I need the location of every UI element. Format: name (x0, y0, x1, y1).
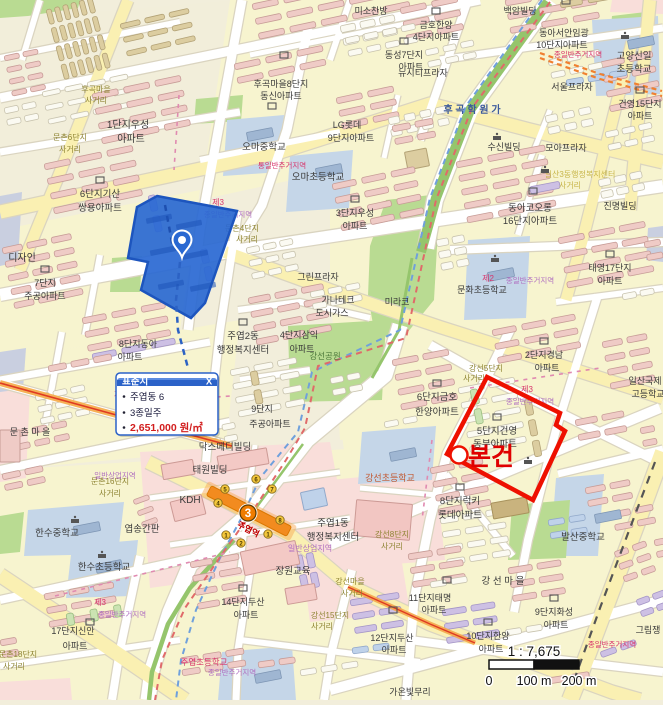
svg-text:9단지화성: 9단지화성 (535, 607, 573, 617)
svg-text:9단지아파트: 9단지아파트 (328, 133, 374, 143)
svg-text:일산3동행정복지센터: 일산3동행정복지센터 (545, 169, 616, 179)
svg-text:일반상업지역: 일반상업지역 (288, 543, 332, 553)
svg-text:롯데아파트: 롯데아파트 (438, 510, 482, 521)
svg-text:제3: 제3 (94, 598, 106, 607)
svg-text:건영15단지: 건영15단지 (618, 99, 661, 109)
svg-text:한양아파트: 한양아파트 (415, 407, 459, 418)
svg-text:태영17단지: 태영17단지 (588, 263, 631, 273)
svg-text:아파트: 아파트 (382, 645, 407, 655)
svg-text:수신빌딩: 수신빌딩 (487, 142, 520, 152)
svg-text:후곡마을: 후곡마을 (81, 85, 110, 94)
svg-text:가나테크: 가나테크 (321, 295, 354, 305)
svg-text:10단지한양: 10단지한양 (466, 631, 509, 641)
svg-text:주엽동 6: 주엽동 6 (130, 392, 164, 403)
svg-text:강선마을: 강선마을 (335, 576, 364, 586)
svg-text:제2: 제2 (482, 274, 494, 283)
svg-text:미라코: 미라코 (385, 297, 410, 307)
svg-text:주엽2동: 주엽2동 (227, 331, 259, 342)
svg-text:사거리: 사거리 (341, 589, 363, 598)
svg-text:일반상업지역: 일반상업지역 (94, 470, 135, 480)
svg-text:동아코오롱: 동아코오롱 (508, 203, 552, 214)
svg-text:장원교육: 장원교육 (276, 566, 311, 577)
svg-text:아파트: 아파트 (63, 641, 88, 651)
svg-text:아파트: 아파트 (422, 605, 447, 615)
svg-text:행정복지센터: 행정복지센터 (307, 531, 359, 543)
svg-text:오마초등학교: 오마초등학교 (292, 172, 345, 183)
svg-text:주엽1동: 주엽1동 (317, 518, 349, 529)
svg-text:사거리: 사거리 (59, 145, 81, 154)
svg-text:문화초등학교: 문화초등학교 (457, 285, 507, 295)
svg-text:강선5단지: 강선5단지 (469, 363, 503, 373)
svg-text:아파트: 아파트 (544, 620, 569, 630)
svg-text:4단지삼익: 4단지삼익 (280, 329, 318, 340)
svg-text:종일반주거지역: 종일반주거지역 (208, 667, 256, 677)
svg-text:강선8단지: 강선8단지 (375, 529, 409, 539)
svg-text:17단지신안: 17단지신안 (51, 626, 94, 636)
svg-text:디자인: 디자인 (8, 252, 36, 264)
svg-text:KDH: KDH (179, 495, 200, 506)
svg-text:1 : 7,675: 1 : 7,675 (508, 644, 561, 659)
svg-text:종일반주거지역: 종일반주거지역 (588, 639, 636, 649)
svg-text:한수중학교: 한수중학교 (35, 528, 79, 539)
svg-text:문촌6단지: 문촌6단지 (53, 132, 87, 142)
svg-text:동성7단지: 동성7단지 (385, 50, 423, 60)
svg-text:아파트: 아파트 (628, 111, 653, 121)
svg-text:16단지아파트: 16단지아파트 (503, 216, 558, 227)
svg-text:2단지경남: 2단지경남 (525, 349, 563, 360)
svg-text:아파트: 아파트 (343, 221, 368, 231)
svg-text:200 m: 200 m (562, 674, 597, 688)
svg-text:6단지금호: 6단지금호 (417, 392, 458, 403)
svg-text:사거리: 사거리 (236, 235, 258, 244)
svg-text:문촌18단지: 문촌18단지 (0, 649, 37, 659)
svg-text:주공아파트: 주공아파트 (249, 419, 290, 429)
svg-text:강선공원: 강선공원 (309, 351, 340, 361)
svg-text:2,651,000 원/㎡: 2,651,000 원/㎡ (130, 421, 203, 434)
svg-text:통일반주거지역: 통일반주거지역 (258, 160, 306, 170)
svg-text:후 곡 학 원 가: 후 곡 학 원 가 (443, 103, 501, 116)
svg-text:엽송간판: 엽송간판 (125, 524, 160, 535)
svg-text:아파트: 아파트 (479, 644, 504, 654)
svg-text:아파트: 아파트 (598, 276, 623, 286)
svg-text:서울프라자: 서울프라자 (551, 82, 593, 92)
svg-text:강선15단지: 강선15단지 (311, 610, 349, 620)
svg-text:고양신일: 고양신일 (617, 51, 652, 62)
svg-text:5단지건영: 5단지건영 (477, 426, 517, 437)
svg-text:사거리: 사거리 (463, 374, 485, 383)
svg-text:그림쟁: 그림쟁 (636, 624, 661, 635)
svg-text:3종일주: 3종일주 (130, 408, 162, 419)
svg-text:금호한양: 금호한양 (419, 20, 452, 30)
svg-text:쌍용아파트: 쌍용아파트 (78, 203, 122, 214)
svg-text:도시가스: 도시가스 (315, 308, 348, 318)
svg-text:12단지두산: 12단지두산 (370, 633, 413, 643)
svg-text:LG롯데: LG롯데 (333, 120, 362, 130)
svg-text:사거리: 사거리 (311, 622, 333, 631)
svg-text:초등학교: 초등학교 (617, 64, 652, 75)
svg-text:4단지아파트: 4단지아파트 (413, 32, 459, 42)
svg-text:본건: 본건 (468, 443, 514, 471)
svg-text:3: 3 (245, 508, 251, 520)
svg-text:한수초등학교: 한수초등학교 (78, 562, 131, 573)
svg-text:사거리: 사거리 (3, 662, 25, 671)
svg-text:가온빛무리: 가온빛무리 (389, 687, 430, 697)
svg-text:사거리: 사거리 (559, 181, 581, 190)
svg-text:미소찬방: 미소찬방 (354, 6, 387, 16)
svg-text:오마중학교: 오마중학교 (242, 142, 286, 153)
svg-text:8단지동아: 8단지동아 (119, 339, 158, 349)
svg-text:고등학교: 고등학교 (631, 389, 663, 399)
svg-text:태원빌딩: 태원빌딩 (193, 465, 228, 476)
svg-text:동아서안임광: 동아서안임광 (539, 27, 589, 38)
svg-text:행정복지센터: 행정복지센터 (217, 344, 269, 356)
svg-text:동신아파트: 동신아파트 (260, 91, 301, 101)
svg-text:10단지아파트: 10단지아파트 (536, 40, 587, 50)
svg-text:강선초등학교: 강선초등학교 (365, 473, 415, 483)
svg-text:강 선 마 을: 강 선 마 을 (482, 576, 525, 587)
svg-text:그린프라자: 그린프라자 (297, 272, 339, 282)
svg-text:아파트: 아파트 (535, 363, 560, 373)
svg-text:7단지: 7단지 (34, 278, 56, 288)
svg-text:후곡마을8단지: 후곡마을8단지 (254, 79, 309, 89)
svg-text:100 m: 100 m (517, 674, 552, 688)
svg-text:백암빌딩: 백암빌딩 (503, 5, 536, 16)
svg-text:발산중학교: 발산중학교 (561, 532, 605, 543)
svg-text:종일반주거지역: 종일반주거지역 (506, 275, 554, 285)
svg-text:일산국제: 일산국제 (628, 376, 661, 386)
svg-text:14단지두산: 14단지두산 (221, 597, 264, 607)
svg-text:아파트: 아파트 (118, 352, 143, 362)
svg-text:9단지: 9단지 (251, 404, 273, 414)
svg-text:진명빌딩: 진명빌딩 (603, 201, 636, 211)
svg-text:주공아파트: 주공아파트 (24, 291, 65, 301)
svg-text:11단지태명: 11단지태명 (409, 593, 451, 603)
svg-text:아파트: 아파트 (117, 133, 145, 145)
svg-text:모아프라자: 모아프라자 (545, 143, 587, 153)
svg-text:뉴시티프라자: 뉴시티프라자 (398, 68, 448, 78)
svg-text:문 촌 마 을: 문 촌 마 을 (10, 427, 51, 437)
svg-text:종일반주거지역: 종일반주거지역 (98, 609, 146, 619)
svg-text:6단지기산: 6단지기산 (80, 189, 121, 200)
svg-text:X: X (206, 377, 213, 388)
svg-text:종일반주거지역: 종일반주거지역 (554, 49, 602, 59)
svg-text:사거리: 사거리 (381, 542, 403, 551)
svg-text:사거리: 사거리 (99, 489, 121, 498)
svg-text:아파트: 아파트 (234, 610, 259, 620)
svg-text:주엽초등학교: 주엽초등학교 (181, 657, 228, 667)
svg-text:1단지우성: 1단지우성 (107, 119, 149, 131)
svg-text:닥스메디빌딩: 닥스메디빌딩 (199, 442, 251, 453)
svg-text:사거리: 사거리 (85, 96, 107, 105)
svg-text:3단지우성: 3단지우성 (336, 208, 374, 218)
svg-text:표준지: 표준지 (122, 376, 148, 388)
svg-text:8단지럭키: 8단지럭키 (440, 495, 480, 507)
svg-text:0: 0 (486, 674, 493, 688)
